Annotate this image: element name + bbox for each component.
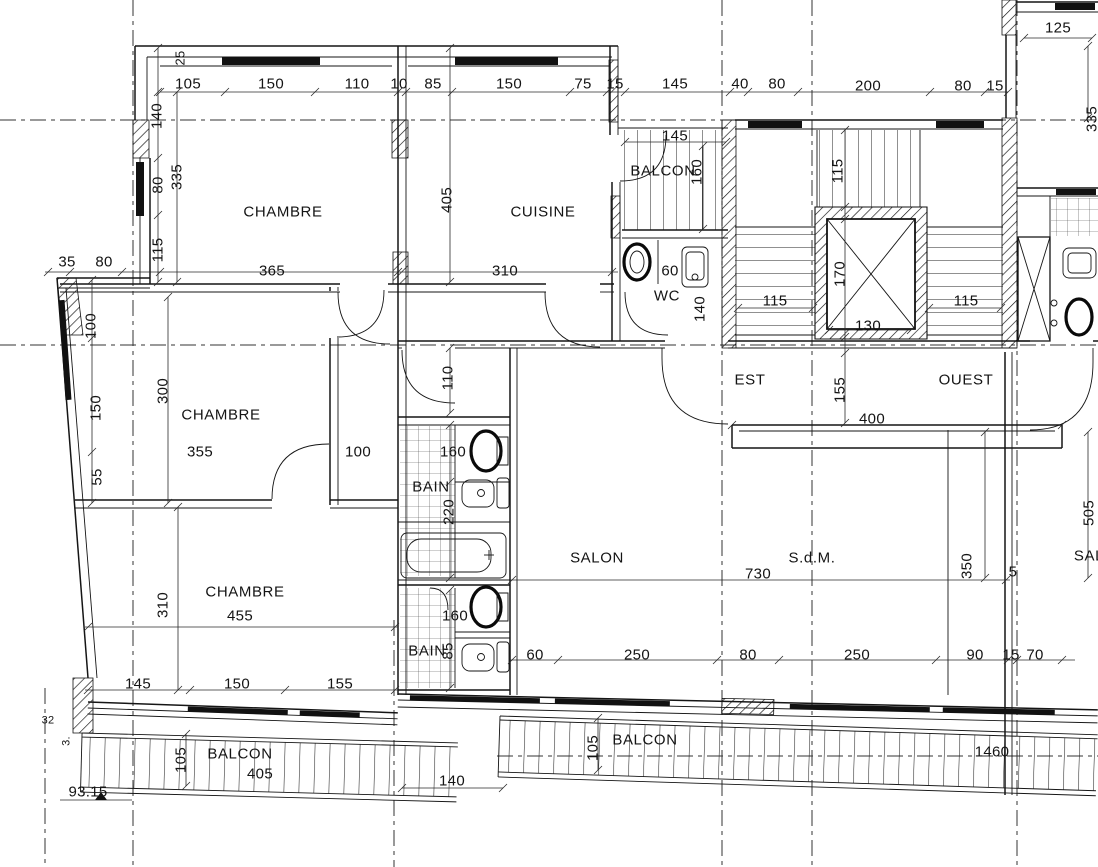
dim-label: 200 (855, 79, 881, 94)
dim-label: 110 (345, 77, 370, 92)
dim-label: 145 (125, 677, 151, 692)
dim-label: 85 (424, 77, 441, 92)
dim-label: 25 (174, 50, 187, 65)
dim-label: 140 (150, 103, 165, 129)
dim-label: 105 (174, 747, 189, 773)
dim-label: 80 (768, 77, 785, 92)
dim-label: 40 (731, 77, 748, 92)
dim-label: 35 (58, 255, 75, 270)
dim-label: 60 (526, 648, 543, 663)
dim-label: 110 (441, 366, 456, 391)
dim-label: 115 (151, 238, 166, 263)
dim-label: 1460 (975, 745, 1010, 760)
dim-label: 160 (440, 445, 466, 460)
dim-label: 730 (745, 567, 771, 582)
duct-box (1018, 237, 1050, 341)
bottom-facade-left (88, 702, 398, 725)
wall-lines (57, 2, 1098, 795)
dim-label: 170 (833, 261, 848, 287)
dim-label: 70 (1026, 648, 1043, 663)
sink-icon (462, 644, 494, 671)
bidet-icon (624, 244, 650, 280)
dim-label: 60 (661, 264, 678, 279)
dim-label: 10 (390, 77, 407, 92)
room-label: BALCON (207, 747, 272, 762)
dim-label: 80 (95, 255, 112, 270)
room-label: SALON (570, 551, 624, 566)
dim-label: 335 (1085, 106, 1098, 132)
dim-label: 365 (259, 264, 285, 279)
dim-label: 93.15 (68, 785, 107, 800)
dim-label: 150 (89, 395, 104, 421)
room-label: OUEST (939, 373, 994, 388)
dim-label: 145 (662, 77, 688, 92)
room-label: BALCON (630, 164, 695, 179)
floorplan-canvas: CHAMBRECUISINEBALCONWCESTOUESTCHAMBREBAI… (0, 0, 1098, 867)
dim-label: 15 (1002, 648, 1019, 663)
dim-label: 310 (156, 592, 171, 618)
dim-label: 3. (62, 736, 73, 746)
dim-label: 140 (439, 774, 465, 789)
dim-label: 55 (90, 468, 105, 485)
dim-label: 85 (441, 642, 456, 659)
dim-label: 5 (1009, 565, 1018, 580)
dim-label: 130 (855, 319, 881, 334)
sink-icon (462, 480, 494, 507)
dim-label: 125 (1045, 21, 1071, 36)
dim-label: 100 (345, 445, 371, 460)
dim-label: 115 (763, 294, 788, 309)
dim-label: 310 (492, 264, 518, 279)
dim-label: 140 (693, 296, 708, 322)
dim-label: 32 (42, 716, 55, 727)
room-label: CHAMBRE (181, 408, 260, 423)
dim-label: 405 (440, 187, 455, 213)
dim-label: 105 (586, 735, 601, 761)
toilet-icon (471, 431, 501, 471)
dim-label: 505 (1082, 500, 1097, 526)
dim-label: 250 (624, 648, 650, 663)
toilet-icon (471, 587, 501, 627)
room-label: CHAMBRE (205, 585, 284, 600)
dim-label: 15 (986, 79, 1003, 94)
dim-label: 335 (170, 164, 185, 190)
dim-label: 150 (258, 77, 284, 92)
dim-label: 105 (175, 77, 201, 92)
dim-label: 90 (966, 648, 983, 663)
dim-label: 100 (84, 313, 99, 339)
dim-label: 15 (606, 77, 623, 92)
dim-label: 80 (739, 648, 756, 663)
hatch-piers (57, 0, 1017, 733)
room-label: WC (654, 289, 680, 304)
room-label: CUISINE (510, 205, 575, 220)
room-label: CHAMBRE (243, 205, 322, 220)
floorplan-svg (0, 0, 1098, 867)
dim-label: 350 (960, 553, 975, 579)
dim-label: 115 (954, 294, 979, 309)
dim-label: 150 (224, 677, 250, 692)
dim-label: 155 (327, 677, 353, 692)
dim-label: 405 (247, 767, 273, 782)
toilet-icon (1066, 299, 1092, 335)
room-label: EST (735, 373, 766, 388)
room-label: SAL (1074, 549, 1098, 564)
dim-label: 400 (859, 412, 885, 427)
dim-label: 115 (831, 159, 846, 184)
dim-label: 160 (442, 609, 468, 624)
dim-label: 355 (187, 445, 213, 460)
dim-label: 300 (156, 378, 171, 404)
bottom-facade (398, 691, 1098, 723)
dim-label: 80 (151, 176, 166, 193)
dim-label: 80 (954, 79, 971, 94)
dim-label: 75 (574, 77, 591, 92)
room-label: BAIN (412, 480, 449, 495)
dim-label: 150 (496, 77, 522, 92)
dim-label: 155 (833, 377, 848, 403)
dim-label: 160 (690, 159, 705, 185)
dim-label: 455 (227, 609, 253, 624)
dim-label: 220 (442, 499, 457, 525)
room-label: BALCON (612, 733, 677, 748)
room-label: S.d.M. (789, 551, 836, 566)
dim-label: 250 (844, 648, 870, 663)
dim-label: 145 (662, 129, 688, 144)
